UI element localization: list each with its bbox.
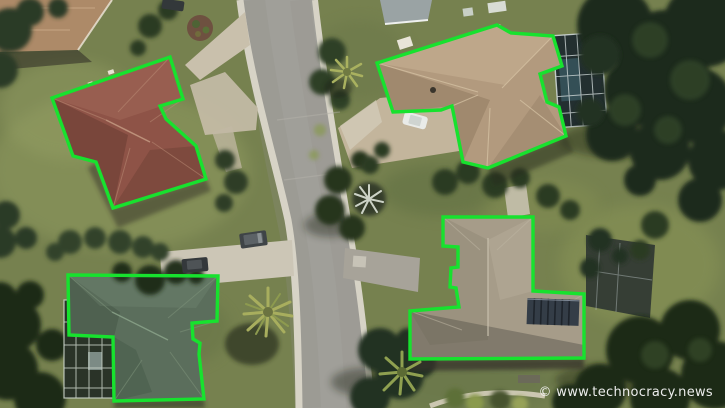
solar-panels: [527, 298, 580, 326]
garden-circle: [187, 15, 213, 41]
tree-silver: [352, 182, 386, 216]
screenshot: © www.technocracy.news: [0, 0, 725, 408]
car-driveway-dark: [181, 257, 208, 273]
watermark-text: © www.technocracy.news: [539, 385, 713, 400]
walkway-house4: [504, 184, 530, 218]
aerial-photo-canvas: © www.technocracy.news: [0, 0, 725, 408]
